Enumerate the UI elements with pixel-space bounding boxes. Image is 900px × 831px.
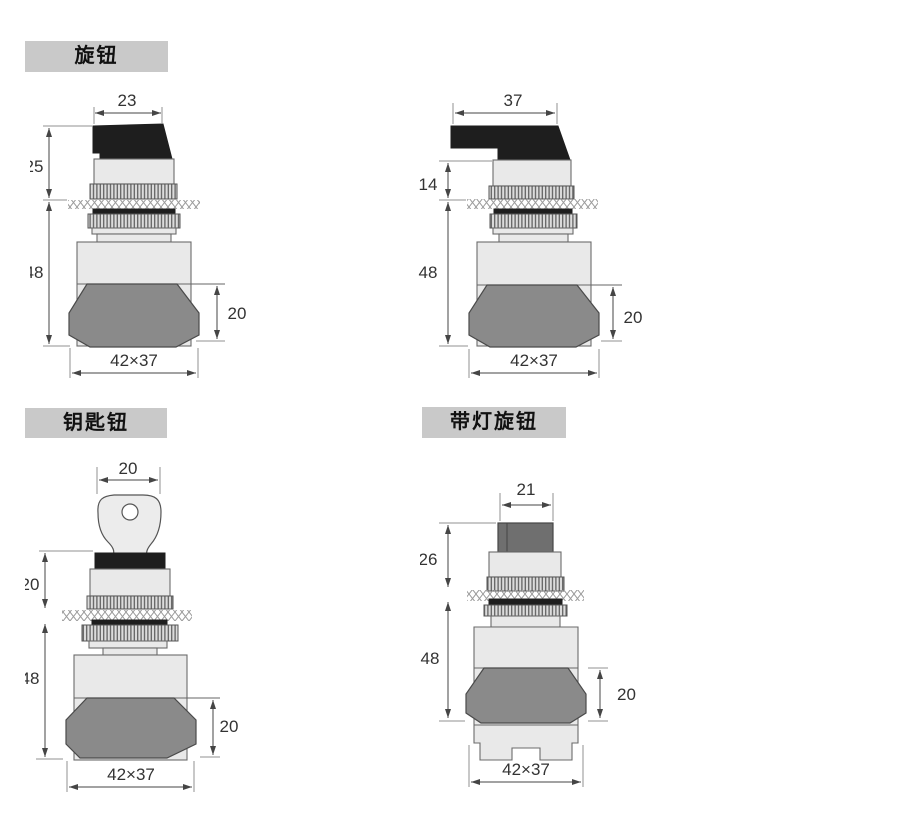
section-label-knob: 旋钮 <box>25 41 168 72</box>
lock-nut-ring <box>82 625 178 641</box>
dim-label-top-width: 20 <box>119 459 138 478</box>
section-label-illuminated: 带灯旋钮 <box>422 407 566 438</box>
dim-top-width: 20 <box>97 459 160 494</box>
dim-label-top-width: 21 <box>517 480 536 499</box>
dim-base-size: 42×37 <box>70 348 198 378</box>
seal-ring <box>494 209 572 214</box>
dim-label-nut-height: 20 <box>617 685 636 704</box>
bezel <box>94 159 174 184</box>
dim-label-nut-height: 20 <box>228 304 247 323</box>
washer <box>491 616 560 627</box>
dim-nut-height: 20 <box>196 286 246 341</box>
key-collar <box>95 553 165 569</box>
dim-top-width: 23 <box>94 91 162 124</box>
panel-section-zigzag <box>68 200 200 209</box>
dim-nut-height: 20 <box>588 668 636 721</box>
dim-base-size: 42×37 <box>67 761 194 792</box>
bezel <box>493 160 571 186</box>
dim-label-above-panel: 26 <box>420 550 437 569</box>
washer <box>92 228 176 234</box>
dim-label-top-width: 23 <box>118 91 137 110</box>
dim-height-below-panel: 48 <box>30 202 70 346</box>
dim-label-below-panel: 48 <box>419 263 438 282</box>
lock-nut-ring <box>490 214 577 228</box>
lock-nut-ring <box>484 605 567 616</box>
datasheet-canvas: 旋钮 钥匙钮 带灯旋钮 23 25 <box>0 0 900 831</box>
drawing-illuminated-knob: 21 26 48 20 42×37 <box>420 480 670 802</box>
knurl-ring-upper <box>489 186 574 199</box>
neck <box>499 234 568 242</box>
neck <box>103 648 157 655</box>
dim-label-base-size: 42×37 <box>107 765 155 784</box>
dim-height-above-panel: 26 <box>420 523 496 587</box>
dim-nut-height: 20 <box>601 287 642 341</box>
drawing-key-switch: 20 20 48 20 42× <box>25 455 265 800</box>
knurl-ring-upper <box>87 596 173 609</box>
dim-height-below-panel: 48 <box>419 202 468 346</box>
dim-height-below-panel: 48 <box>25 624 63 759</box>
mounting-nut <box>466 668 586 723</box>
knurl-ring-upper <box>90 184 177 199</box>
dim-label-above-panel: 14 <box>419 175 438 194</box>
mounting-nut <box>469 285 599 347</box>
dim-label-base-size: 42×37 <box>110 351 158 370</box>
bezel <box>90 569 170 596</box>
key-hole <box>122 504 138 520</box>
drawing-knob-long: 37 14 48 20 42×37 <box>410 85 660 385</box>
dim-base-size: 42×37 <box>469 349 599 378</box>
dim-top-width: 21 <box>500 480 553 521</box>
dim-label-below-panel: 48 <box>30 263 43 282</box>
illuminated-knob-cap <box>498 523 553 552</box>
dim-label-base-size: 42×37 <box>510 351 558 370</box>
panel-section-zigzag <box>62 610 192 621</box>
dim-height-above-panel: 25 <box>30 126 92 200</box>
lever-handle <box>451 126 570 160</box>
drawing-knob-short: 23 25 48 20 42×37 <box>30 90 260 385</box>
dim-label-below-panel: 48 <box>421 649 440 668</box>
bezel <box>489 552 561 577</box>
knurl-ring-upper <box>487 577 564 591</box>
neck <box>97 234 171 242</box>
dim-label-above-panel: 20 <box>25 575 39 594</box>
washer <box>493 228 573 234</box>
seal-ring <box>92 620 167 625</box>
lock-nut-ring <box>88 214 180 228</box>
washer <box>89 641 167 648</box>
dim-nut-height: 20 <box>200 700 238 757</box>
seal-ring <box>489 599 562 605</box>
seal-ring <box>93 209 175 214</box>
dim-label-top-width: 37 <box>504 91 523 110</box>
dim-label-above-panel: 25 <box>30 157 43 176</box>
dim-height-above-panel: 14 <box>419 161 492 200</box>
dim-top-width: 37 <box>453 91 557 124</box>
dim-label-nut-height: 20 <box>624 308 643 327</box>
dim-height-above-panel: 20 <box>25 551 93 608</box>
dim-label-nut-height: 20 <box>220 717 239 736</box>
section-label-key: 钥匙钮 <box>25 408 167 438</box>
dim-label-base-size: 42×37 <box>502 760 550 779</box>
mounting-nut <box>69 284 199 347</box>
mounting-nut <box>66 698 196 758</box>
dim-height-below-panel: 48 <box>421 602 465 721</box>
dim-label-below-panel: 48 <box>25 669 39 688</box>
selector-handle <box>93 124 172 159</box>
panel-section-zigzag <box>467 199 598 209</box>
